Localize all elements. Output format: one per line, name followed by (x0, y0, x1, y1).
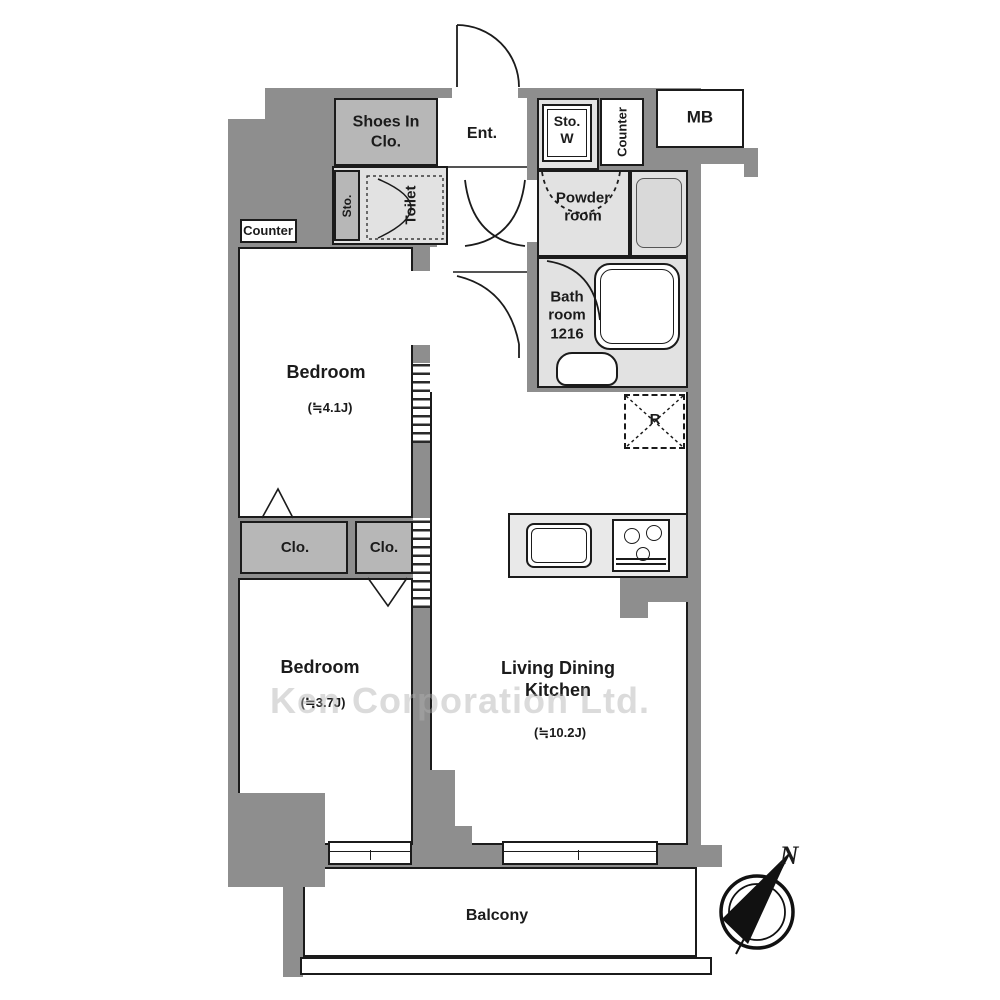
room-label-powder: Powder room (547, 190, 619, 227)
room-label-entrance: Ent. (467, 124, 497, 144)
room-label-counter-left: Counter (243, 223, 293, 239)
room-label-ldk: Living Dining Kitchen (483, 658, 633, 702)
bathroom-size: 1216 (539, 325, 595, 343)
room-label-bedroom-2: Bedroom (280, 657, 359, 679)
room-label-meter-box: MB (687, 108, 713, 129)
room-area-ldk: (≒10.2J) (534, 725, 586, 741)
ldk-door-arc-icon (457, 276, 519, 344)
room-label-bedroom-1: Bedroom (286, 362, 365, 384)
closet-1-bifold-door-icon (262, 489, 293, 518)
room-label-toilet-storage: Sto. (340, 195, 354, 218)
entrance-door-arc-icon (457, 25, 519, 87)
room-label-refrigerator: R (650, 411, 661, 429)
compass-north-label: N (780, 840, 799, 872)
room-area-bedroom-2: (≒3.7J) (301, 695, 346, 711)
room-label-shoes-closet: Shoes In Clo. (340, 112, 432, 151)
plan-symbols (0, 0, 1000, 1000)
room-label-bathroom: Bath room 1216 (539, 289, 595, 344)
room-label-toilet: Toilet (403, 186, 420, 225)
closet-2-bifold-door-icon (368, 578, 407, 606)
room-area-bedroom-1: (≒4.1J) (308, 400, 353, 416)
room-label-balcony: Balcony (466, 906, 528, 926)
floor-plan: Shoes In Clo. Ent. Sto. W Counter MB Toi… (0, 0, 1000, 1000)
room-label-closet-2: Clo. (370, 539, 398, 557)
room-label-counter-top: Counter (615, 107, 630, 157)
room-label-closet-1: Clo. (281, 539, 309, 557)
room-label-storage-washer: Sto. W (547, 113, 587, 147)
bathroom-name: Bath room (539, 289, 595, 326)
